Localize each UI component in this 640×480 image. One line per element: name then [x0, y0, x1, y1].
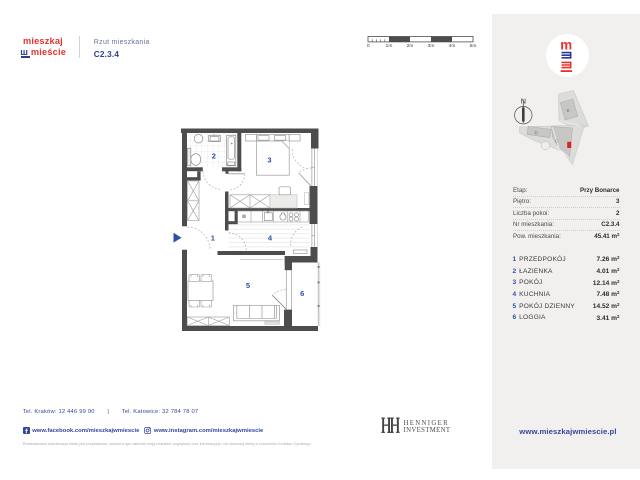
- svg-text:5: 5: [246, 281, 250, 290]
- svg-text:INVESTMENT: INVESTMENT: [404, 427, 451, 434]
- svg-text:6: 6: [300, 289, 304, 298]
- svg-text:1: 1: [211, 234, 215, 243]
- svg-text:0: 0: [367, 43, 370, 49]
- svg-text:2m: 2m: [407, 43, 414, 49]
- svg-text:2: 2: [212, 151, 216, 160]
- svg-text:m: m: [560, 38, 572, 53]
- svg-text:4m: 4m: [449, 43, 456, 49]
- svg-text:HENNIGER: HENNIGER: [404, 420, 450, 427]
- svg-text:3: 3: [267, 156, 271, 165]
- svg-text:1m: 1m: [386, 43, 393, 49]
- svg-text:3m: 3m: [428, 43, 435, 49]
- svg-text:B: B: [567, 108, 570, 113]
- svg-text:5m: 5m: [470, 43, 477, 49]
